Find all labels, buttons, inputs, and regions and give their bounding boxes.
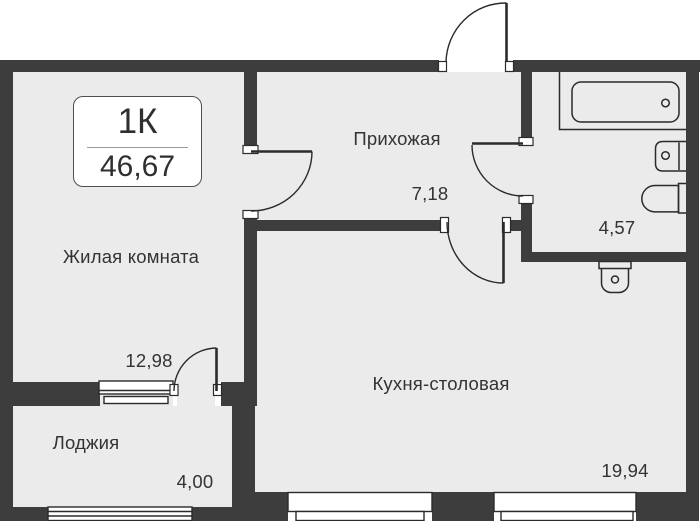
wall-bathroom-left-upper [521, 72, 532, 138]
room-kitchen [255, 231, 686, 492]
window-living-loggia [99, 381, 173, 404]
wall-loggia-bottom-left [0, 507, 48, 521]
wall-top-left [0, 60, 439, 72]
wall-left [0, 60, 13, 521]
living-room-area: 12,98 [125, 350, 172, 372]
wall-living-divider-upper [244, 72, 257, 146]
doorway-balcony-gap [177, 382, 215, 406]
loggia-label: Лоджия [53, 432, 120, 454]
wall-loggia-right [232, 406, 255, 521]
floorplan: 1К 46,67 Жилая комната 12,98 Прихожая 7,… [0, 0, 700, 521]
wall-hallway-kitchen [257, 220, 442, 231]
wall-right [686, 60, 699, 521]
wall-bathroom-bottom [521, 252, 699, 262]
hallway-label: Прихожая [353, 128, 440, 150]
wall-loggia-top-right [221, 382, 257, 406]
apartment-type-label: 1К [74, 97, 201, 147]
loggia-area: 4,00 [177, 471, 214, 493]
hallway-area: 7,18 [412, 183, 449, 205]
doorway-kitchen-gap [448, 220, 504, 231]
wall-loggia-top-left [13, 382, 100, 406]
apartment-total-area: 46,67 [74, 148, 201, 186]
wall-kitchen-bottom-1 [255, 492, 288, 521]
kitchen-area: 19,94 [601, 460, 648, 482]
entrance-door [446, 3, 507, 62]
wall-kitchen-bottom-2 [432, 492, 494, 521]
wall-top-right [513, 60, 700, 72]
apartment-badge: 1К 46,67 [73, 96, 202, 187]
window-kitchen-1 [288, 493, 432, 521]
bathroom-area: 4,57 [599, 217, 636, 239]
wall-kitchen-bottom-3 [636, 492, 686, 521]
window-kitchen-2 [494, 493, 636, 521]
jamb-living-bottom [243, 211, 258, 219]
doorway-bathroom-gap [521, 146, 532, 196]
doorway-living-gap [244, 153, 257, 211]
kitchen-label: Кухня-столовая [372, 373, 509, 395]
wall-loggia-bottom-right [192, 507, 255, 521]
jamb-bathroom-bottom [519, 196, 533, 204]
jamb-entrance-left [439, 62, 447, 72]
living-room-label: Жилая комната [63, 246, 199, 268]
window-loggia [48, 507, 192, 521]
wall-living-divider-lower [244, 219, 257, 382]
jamb-entrance-right [506, 62, 514, 72]
